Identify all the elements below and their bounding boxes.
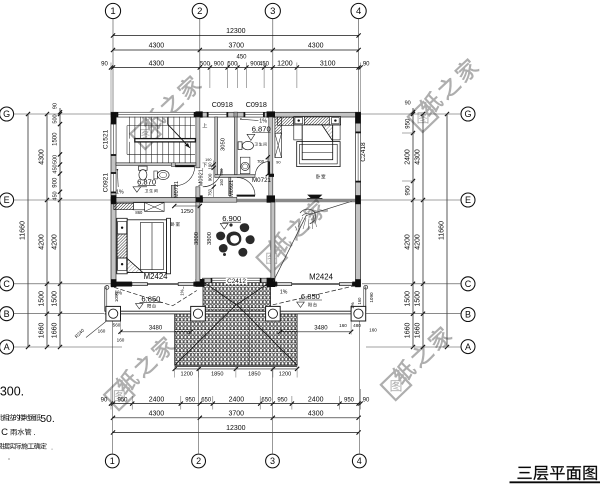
svg-text:4300: 4300 (39, 149, 46, 165)
svg-text:1200: 1200 (277, 60, 293, 67)
svg-text:6.870: 6.870 (137, 177, 156, 186)
svg-text:C0918: C0918 (212, 100, 233, 109)
svg-text:E: E (465, 195, 471, 205)
svg-text:190: 190 (207, 162, 212, 170)
svg-text:G: G (464, 109, 471, 119)
svg-text:1: 1 (110, 6, 115, 17)
svg-text:500: 500 (53, 114, 59, 123)
svg-text:3480: 3480 (314, 326, 328, 332)
svg-text:M0921: M0921 (229, 180, 235, 197)
svg-text:450: 450 (236, 54, 247, 60)
svg-text:1660: 1660 (415, 323, 422, 339)
svg-text:2: 2 (196, 456, 201, 466)
svg-text:3700: 3700 (229, 410, 245, 417)
svg-text:950: 950 (277, 397, 288, 403)
svg-text:560: 560 (113, 323, 121, 328)
svg-text:4300: 4300 (149, 410, 165, 417)
svg-text:B: B (465, 310, 471, 320)
svg-text:1500: 1500 (415, 291, 422, 307)
svg-text:2400: 2400 (308, 396, 324, 403)
svg-text:1850: 1850 (248, 371, 260, 377)
svg-text:1850: 1850 (211, 371, 223, 377)
svg-text:3050: 3050 (221, 138, 227, 151)
svg-text:4200: 4200 (39, 234, 46, 250)
svg-text:1250: 1250 (181, 209, 194, 215)
svg-text:480: 480 (353, 323, 361, 328)
svg-text:C: C (465, 279, 472, 289)
svg-text:1500: 1500 (53, 132, 59, 146)
svg-text:B: B (4, 309, 10, 319)
svg-text:1660: 1660 (405, 323, 412, 339)
svg-text:2400: 2400 (405, 149, 412, 165)
svg-text:2: 2 (197, 6, 202, 17)
svg-text:A: A (465, 342, 471, 352)
svg-text:3480: 3480 (149, 326, 163, 332)
svg-text:4300: 4300 (149, 43, 165, 50)
svg-text:C2412: C2412 (227, 278, 246, 285)
svg-text:1: 1 (110, 456, 115, 466)
svg-text:A: A (4, 342, 10, 352)
svg-text:E: E (4, 195, 10, 205)
svg-text:3: 3 (270, 456, 275, 466)
svg-text:1%: 1% (259, 118, 267, 124)
svg-text:950: 950 (406, 185, 412, 196)
svg-text:M2424: M2424 (144, 272, 169, 281)
svg-text:3800: 3800 (194, 232, 200, 245)
svg-text:1200: 1200 (279, 371, 291, 377)
svg-text:160: 160 (357, 297, 362, 305)
svg-text:4200: 4200 (415, 234, 422, 250)
svg-text:90: 90 (101, 61, 108, 67)
svg-text:4300: 4300 (308, 410, 324, 417)
svg-text:4300: 4300 (149, 60, 165, 67)
svg-text:160: 160 (369, 328, 377, 333)
svg-text:900: 900 (214, 61, 225, 67)
svg-text:1%: 1% (116, 189, 124, 195)
svg-text:C2418: C2418 (360, 142, 367, 162)
svg-text:G: G (3, 109, 10, 119)
svg-text:1090: 1090 (369, 292, 374, 303)
svg-text:450: 450 (53, 191, 59, 200)
svg-text:M0921: M0921 (198, 169, 204, 186)
svg-text:2400: 2400 (229, 396, 245, 403)
svg-text:1500: 1500 (52, 291, 59, 307)
svg-text:500: 500 (200, 61, 211, 67)
svg-text:500: 500 (227, 61, 238, 67)
svg-text:11660: 11660 (439, 221, 446, 240)
svg-text:C: C (3, 279, 10, 289)
svg-text:.: . (8, 452, 11, 462)
svg-text:500: 500 (53, 155, 59, 164)
svg-text:1660: 1660 (52, 323, 59, 339)
svg-text:1660: 1660 (39, 323, 46, 339)
svg-text:C0918: C0918 (246, 100, 267, 109)
svg-text:4200: 4200 (52, 234, 59, 250)
svg-text:1200: 1200 (180, 371, 192, 377)
svg-text:90: 90 (53, 103, 59, 109)
svg-text:450: 450 (53, 164, 59, 173)
svg-text:M0721: M0721 (174, 181, 180, 198)
svg-text:900: 900 (207, 173, 212, 181)
svg-text:700: 700 (257, 159, 265, 164)
svg-text:950: 950 (406, 118, 412, 129)
svg-text:4300: 4300 (308, 43, 324, 50)
svg-text:.: . (51, 444, 53, 451)
svg-text:50.: 50. (40, 413, 55, 425)
svg-text:3100: 3100 (320, 60, 336, 67)
svg-text:90: 90 (363, 397, 370, 403)
svg-text:C1521: C1521 (102, 129, 109, 149)
svg-text:C0921: C0921 (102, 173, 109, 193)
svg-text:90: 90 (101, 397, 108, 403)
svg-text:3700: 3700 (229, 43, 245, 50)
svg-text:6.900: 6.900 (222, 214, 241, 223)
svg-text:160: 160 (117, 337, 125, 342)
svg-text:M2424: M2424 (309, 273, 334, 282)
svg-text:160: 160 (339, 323, 347, 328)
svg-text:160: 160 (98, 328, 106, 333)
svg-text:900: 900 (219, 168, 224, 176)
svg-text:300.: 300. (0, 385, 24, 399)
svg-text:4: 4 (357, 456, 362, 466)
svg-text:1500: 1500 (39, 291, 46, 307)
svg-text:11660: 11660 (20, 221, 27, 240)
svg-text:1500: 1500 (405, 291, 412, 307)
svg-text:4300: 4300 (415, 149, 422, 165)
svg-text:.: . (33, 428, 35, 437)
svg-text:950: 950 (117, 397, 128, 403)
svg-text:6.850: 6.850 (141, 294, 160, 303)
svg-text:190: 190 (205, 158, 211, 162)
svg-text:3800: 3800 (207, 232, 213, 245)
svg-text:3: 3 (270, 6, 275, 17)
svg-text:90: 90 (363, 61, 370, 67)
svg-text:160: 160 (219, 178, 224, 186)
svg-text:C: C (1, 427, 8, 438)
svg-text:6.870: 6.870 (252, 124, 271, 133)
svg-text:12300: 12300 (226, 425, 246, 432)
svg-text:900: 900 (53, 177, 59, 188)
svg-text:90: 90 (405, 101, 411, 107)
svg-text:12300: 12300 (226, 28, 246, 35)
svg-text:1%: 1% (350, 302, 355, 308)
svg-text:4200: 4200 (405, 234, 412, 250)
svg-text:6.850: 6.850 (301, 292, 320, 301)
svg-text:1%: 1% (180, 289, 185, 295)
svg-text:650: 650 (201, 397, 212, 403)
svg-text:M0721: M0721 (252, 177, 271, 184)
svg-text:750: 750 (207, 188, 212, 196)
svg-text:1%: 1% (280, 289, 288, 295)
svg-text:90: 90 (276, 160, 281, 165)
svg-text:950: 950 (185, 397, 196, 403)
svg-text:650: 650 (261, 397, 272, 403)
svg-text:860: 860 (135, 210, 143, 215)
svg-text:1%: 1% (115, 290, 123, 296)
svg-text:2400: 2400 (149, 396, 165, 403)
svg-text:950: 950 (344, 397, 355, 403)
svg-text:4: 4 (356, 6, 361, 17)
